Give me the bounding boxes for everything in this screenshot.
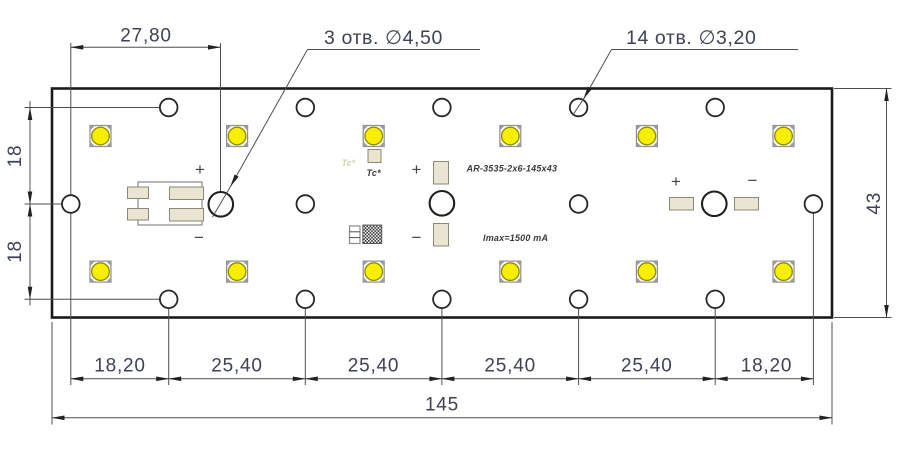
mounting-hole-small [570, 291, 588, 309]
mounting-hole-small [160, 291, 178, 309]
tc-label: Tc* [367, 168, 382, 178]
led [636, 261, 657, 282]
solder-pad [670, 198, 694, 211]
dim-label: 145 [425, 395, 459, 416]
dim-label: 25,40 [211, 356, 263, 377]
dim-27-80: 27,80 [71, 26, 221, 48]
tc-pad [368, 150, 381, 163]
drawing-canvas: + − Tc* Tc* + − AR-3535-2x6-145x43 Imax=… [0, 0, 897, 450]
solder-pad [434, 162, 449, 185]
led [500, 261, 521, 282]
solder-pad [128, 209, 149, 221]
plus-mark: + [195, 160, 205, 179]
hatched-component [363, 225, 382, 244]
mounting-hole-large [702, 192, 727, 217]
dim-right-43: 43 [864, 89, 887, 318]
led [363, 126, 384, 147]
dim-label: 25,40 [621, 356, 673, 377]
imax-label: Imax=1500 mA [483, 233, 548, 243]
led [773, 261, 794, 282]
plus-mark: + [412, 160, 422, 179]
dim-label: 18,20 [94, 356, 146, 377]
solder-pad [170, 187, 204, 200]
mounting-hole-small [706, 99, 724, 117]
dim-label: 43 [864, 192, 885, 215]
mounting-hole-small [570, 195, 588, 213]
led [500, 126, 521, 147]
dim-label: 18,20 [741, 356, 793, 377]
solder-pad [170, 209, 204, 222]
solder-pad [735, 198, 759, 211]
dim-label: 25,40 [484, 356, 536, 377]
component-outline [350, 226, 361, 244]
mounting-hole-small [570, 99, 588, 117]
mounting-hole-small [706, 291, 724, 309]
mounting-hole-small [805, 195, 823, 213]
mounting-hole-small [297, 195, 315, 213]
dim-label: 18 [5, 240, 26, 263]
led [773, 126, 794, 147]
mounting-hole-large [209, 192, 234, 217]
mounting-hole-small [433, 99, 451, 117]
led [90, 261, 111, 282]
solder-pad [128, 187, 149, 199]
callout-label: 3 отв. ∅4,50 [324, 27, 443, 49]
mounting-hole-small [62, 195, 80, 213]
mounting-hole-small [160, 99, 178, 117]
led [363, 261, 384, 282]
plus-mark: + [671, 172, 681, 191]
pcb-dimension-drawing: + − Tc* Tc* + − AR-3535-2x6-145x43 Imax=… [0, 0, 897, 450]
minus-mark: − [412, 228, 422, 247]
mounting-hole-small [297, 99, 315, 117]
callout-label: 14 отв. ∅3,20 [626, 27, 756, 49]
dim-label: 27,80 [120, 26, 172, 47]
led [636, 126, 657, 147]
dim-left-18-18: 18 18 [5, 101, 30, 306]
part-number-label: AR-3535-2x6-145x43 [466, 164, 558, 174]
led [227, 126, 248, 147]
mounting-hole-small [433, 291, 451, 309]
mounting-hole-large [430, 191, 455, 216]
misc-components [350, 225, 382, 244]
minus-mark: − [748, 171, 758, 190]
dim-label: 18 [5, 145, 26, 168]
led [90, 126, 111, 147]
solder-pad [434, 224, 449, 247]
minus-mark: − [194, 228, 204, 247]
tc-silkscreen-label: Tc* [342, 158, 356, 168]
led [227, 261, 248, 282]
dim-label: 25,40 [348, 356, 400, 377]
mounting-hole-small [297, 291, 315, 309]
dim-total-145: 145 [52, 395, 832, 418]
